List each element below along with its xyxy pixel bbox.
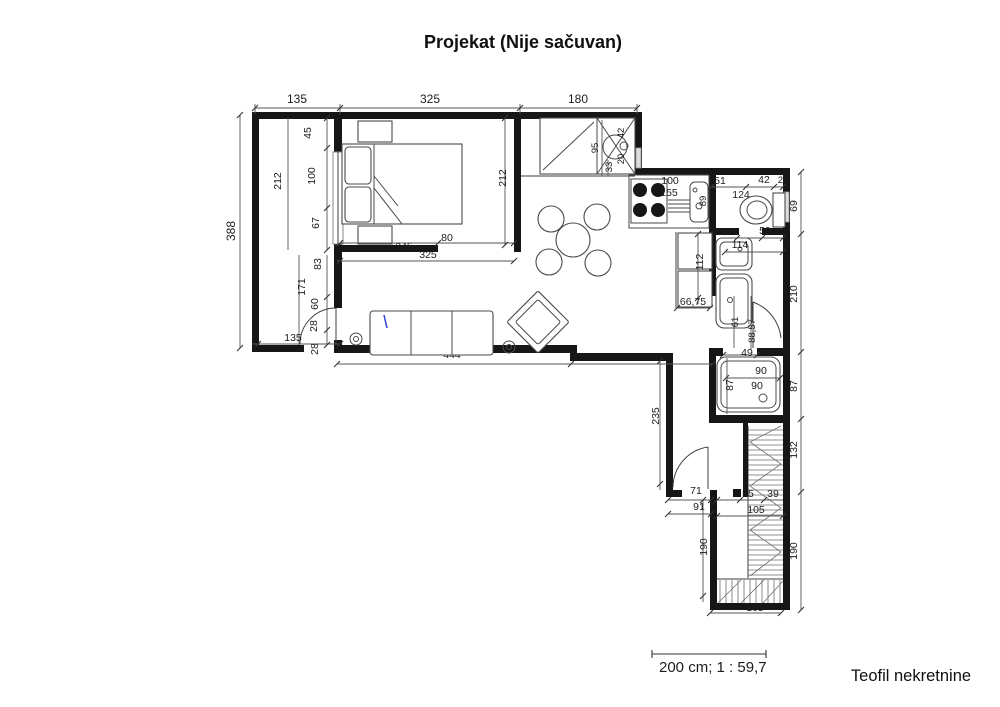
dim-right-132: 132	[788, 441, 800, 459]
dim-bath-61: 61	[730, 317, 741, 328]
dim-wc-114: 114	[732, 239, 749, 251]
wall-corridor-left	[666, 356, 673, 497]
dim-top-135: 135	[287, 92, 307, 106]
bed-pillow-2	[345, 187, 371, 222]
dim-left-388: 388	[224, 221, 238, 241]
wall-left	[252, 112, 259, 352]
agency-name: Teofil nekretnine	[851, 667, 971, 685]
dining-set	[536, 204, 611, 276]
dim-terrace-28: 28	[308, 320, 320, 332]
wall-living-bottom-b	[570, 353, 673, 361]
dim-hall-91: 91	[693, 501, 705, 513]
radiator-valve-inner	[354, 337, 359, 342]
entry-door	[673, 447, 708, 489]
dim-nook-6675: 66,75	[680, 296, 706, 308]
bed-pillow-1	[345, 147, 371, 184]
dim-terrace-212: 212	[272, 172, 284, 190]
closet-window	[636, 148, 641, 168]
floor-plan-drawing: Projekat (Nije sačuvan) 245 444 403 39	[0, 0, 1000, 707]
wall-corridor-shower-divider	[709, 348, 716, 418]
dim-terrace-171: 171	[296, 278, 308, 296]
dim-bedroom-80: 80	[441, 232, 453, 244]
stairs-zigzag	[750, 426, 781, 576]
dim-closet-95: 95	[590, 143, 601, 154]
dim-right-69: 69	[788, 200, 800, 212]
dim-terrace-45: 45	[302, 127, 314, 139]
dining-table	[556, 223, 590, 257]
nightstand-top	[358, 121, 392, 142]
dim-bath-8857: 88,57	[747, 319, 758, 343]
bed	[342, 144, 462, 224]
wall-separator-mid	[334, 244, 342, 308]
stairs-lower-hatch	[718, 580, 783, 603]
sofa	[370, 311, 493, 355]
dim-right-87: 87	[788, 380, 800, 392]
dim-wc-42: 42	[758, 174, 770, 186]
dim-hall-105: 105	[747, 504, 765, 516]
dim-bedroom-325: 325	[419, 249, 437, 261]
dim-wc-21: 21	[778, 175, 789, 186]
dim-bath-49: 49	[741, 347, 753, 359]
scale-label: 200 cm; 1 : 59,7	[659, 659, 767, 676]
dim-bottom-105: 105	[746, 602, 764, 614]
dim-top-325: 325	[420, 92, 440, 106]
dim-hall-55: 55	[742, 488, 754, 500]
stairs-treads	[748, 430, 783, 575]
dim-terrace-100: 100	[306, 167, 318, 185]
scale-bar-line	[652, 650, 766, 658]
dim-wc-124: 124	[732, 189, 750, 201]
wall-shower-top-right	[757, 348, 783, 356]
wall-opening-stub	[733, 489, 741, 497]
wardrobe-body	[540, 118, 635, 174]
wall-stairs-divider	[743, 415, 748, 497]
dim-bedroom-212: 212	[497, 169, 509, 187]
dim-terrace-28b: 28	[309, 343, 321, 355]
stove-burner	[633, 203, 647, 217]
dim-wc-59: 59	[759, 225, 771, 237]
sink-faucet	[693, 188, 697, 192]
dim-right-210: 210	[788, 285, 800, 303]
stove-burner	[651, 203, 665, 217]
dim-kitchen-155: 155	[660, 187, 678, 199]
furniture	[342, 118, 785, 412]
dim-closet-20: 20	[616, 154, 627, 165]
nightstand-bottom	[358, 226, 392, 244]
armchair	[507, 291, 569, 353]
dim-wc-51: 51	[714, 175, 726, 187]
dim-terrace-135: 135	[284, 332, 302, 344]
wall-bottom-block-left	[710, 490, 717, 610]
chair	[584, 204, 610, 230]
dim-hall-71: 71	[690, 485, 702, 497]
dim-hall-235: 235	[650, 407, 662, 425]
dim-closet-33: 33	[604, 162, 615, 173]
dim-shower-90a: 90	[755, 365, 767, 377]
wall-wc-bottom-left	[709, 228, 739, 235]
dim-terrace-60: 60	[309, 298, 321, 310]
dim-closet-42: 42	[616, 128, 627, 139]
toilet-tank	[773, 193, 785, 227]
wardrobe	[521, 118, 635, 176]
page-title: Projekat (Nije sačuvan)	[424, 32, 622, 52]
chair	[538, 206, 564, 232]
wall-corridor-bottom-stub	[666, 490, 682, 497]
sofa-body	[370, 311, 493, 355]
dim-kitchen-100: 100	[661, 175, 679, 187]
dim-shower-90b: 90	[751, 380, 763, 392]
chair	[585, 250, 611, 276]
chair	[536, 249, 562, 275]
dim-bottom-190: 190	[698, 538, 710, 556]
scale-bar: 200 cm; 1 : 59,7	[652, 650, 767, 676]
dim-terrace-83: 83	[312, 258, 324, 270]
dim-kitchen-89: 89	[698, 196, 709, 207]
dim-terrace-67: 67	[310, 217, 322, 229]
stove-burner	[633, 183, 647, 197]
dim-top-180: 180	[568, 92, 588, 106]
dim-right-190: 190	[788, 542, 800, 560]
dim-nook-112: 112	[694, 253, 706, 270]
radiator-valve	[350, 333, 362, 345]
wall-terrace-bottom	[252, 345, 304, 352]
wall-bedroom-right	[514, 112, 521, 252]
wall-separator-upper	[334, 112, 342, 152]
floor-plan-page: Projekat (Nije sačuvan) 245 444 403 39	[0, 0, 1000, 707]
dim-shower-87: 87	[724, 379, 736, 391]
kitchen-drawers	[668, 200, 690, 212]
